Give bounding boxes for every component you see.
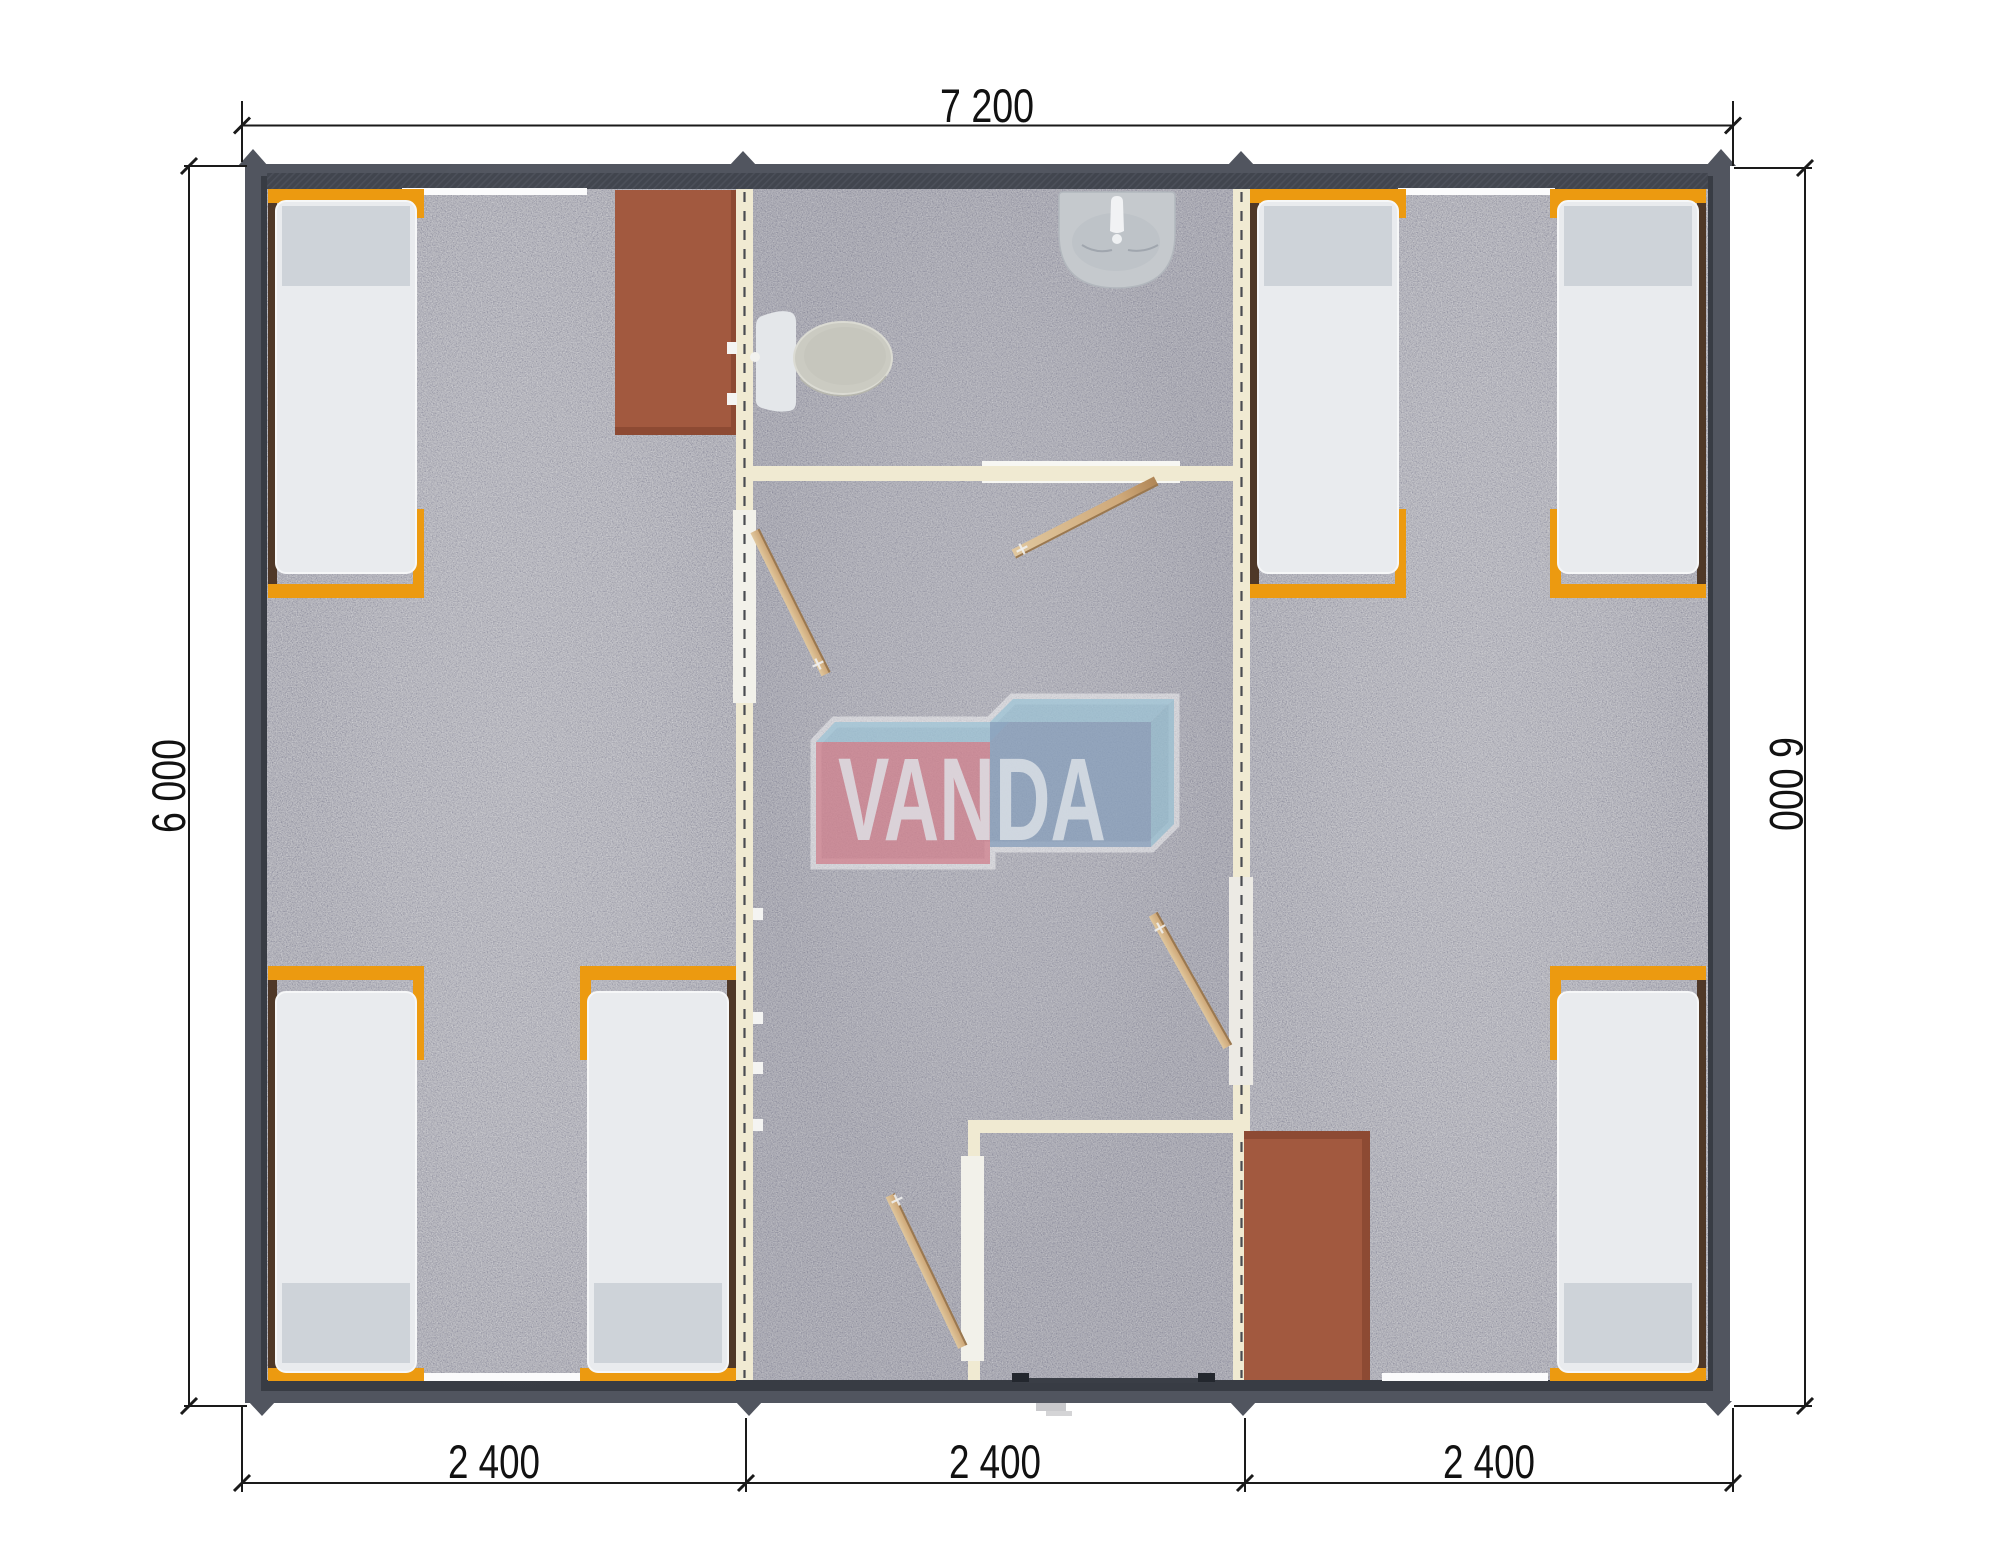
svg-text:6 000: 6 000 xyxy=(142,739,195,833)
svg-text:2 400: 2 400 xyxy=(448,1435,540,1488)
svg-text:7 200: 7 200 xyxy=(940,79,1034,132)
svg-text:2 400: 2 400 xyxy=(1443,1435,1535,1488)
svg-text:VANDA: VANDA xyxy=(838,734,1106,866)
svg-text:6 000: 6 000 xyxy=(1760,737,1813,831)
svg-text:2 400: 2 400 xyxy=(949,1435,1041,1488)
